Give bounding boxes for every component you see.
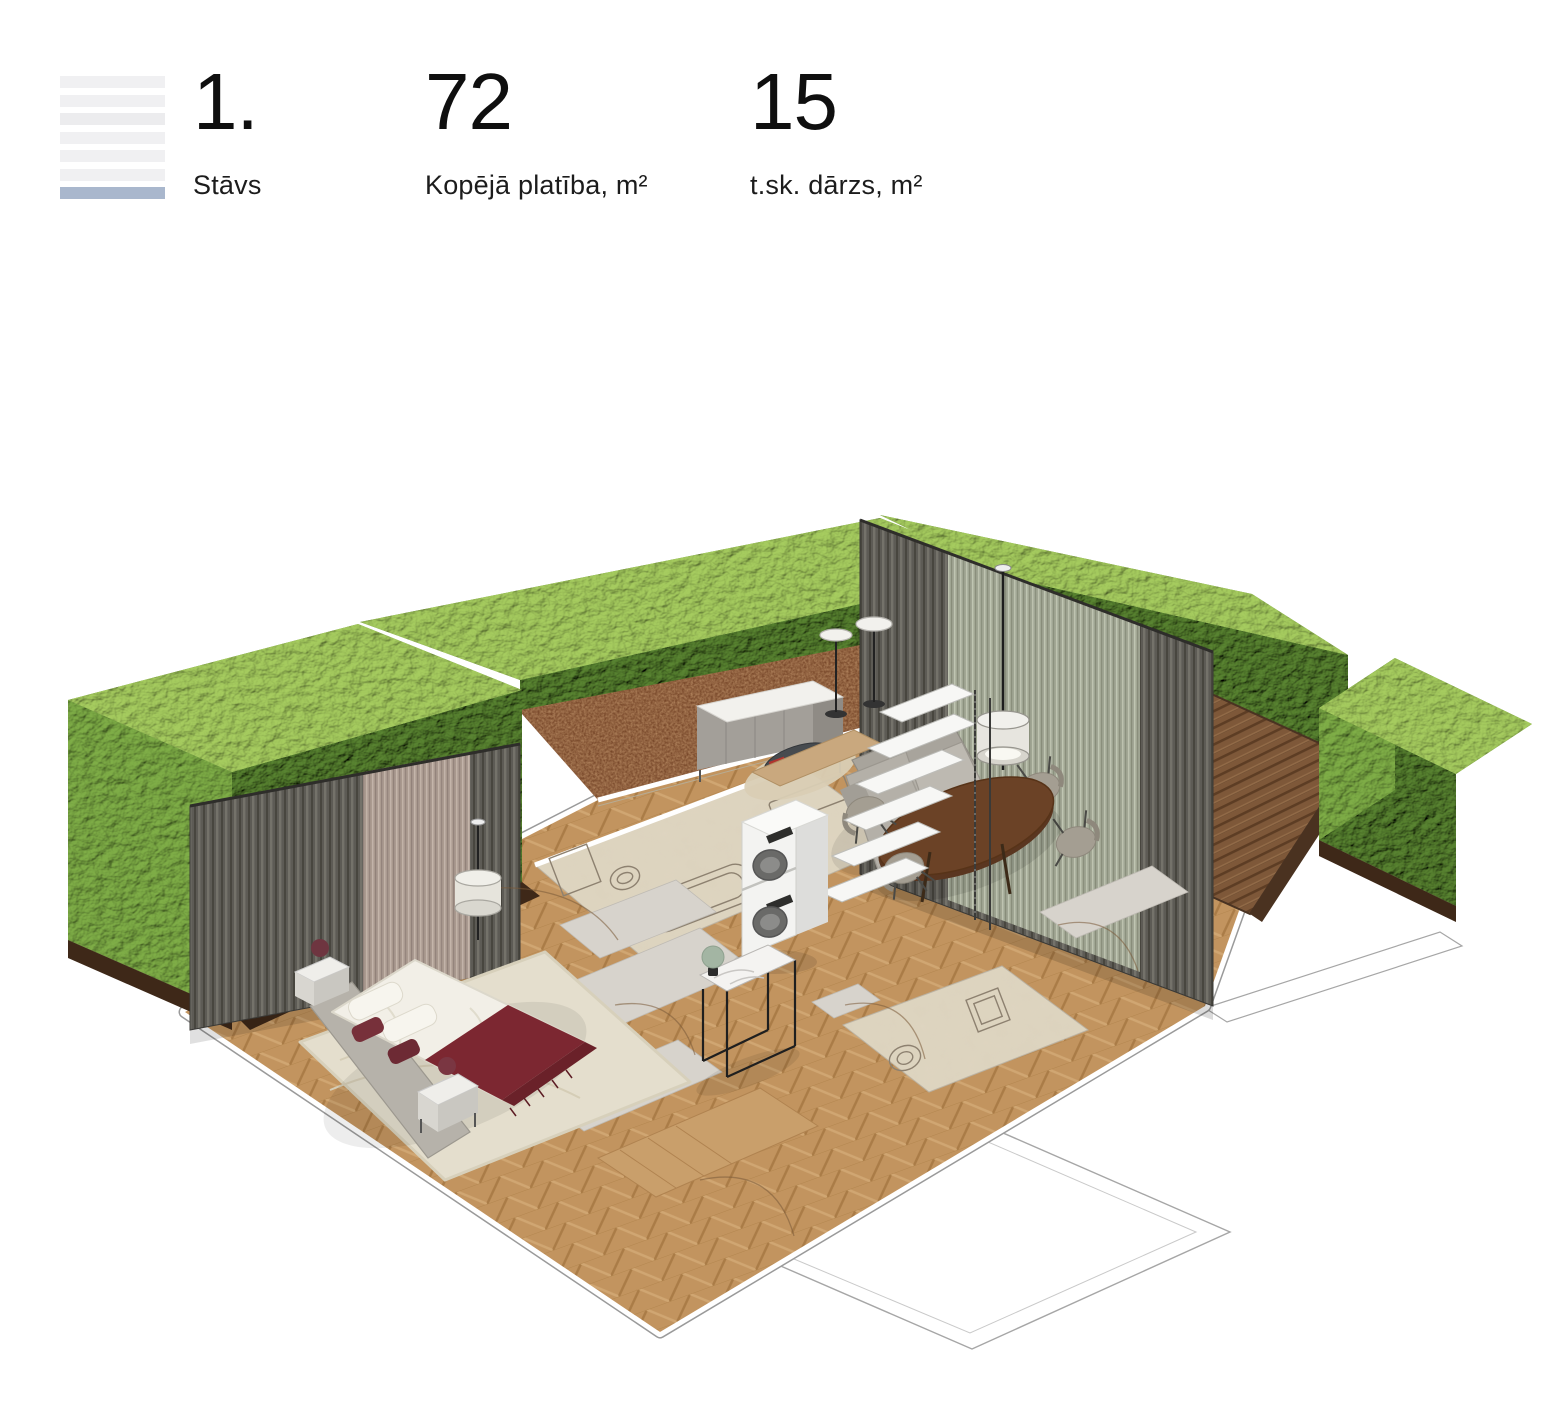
hedge-right xyxy=(1319,658,1532,922)
sphere-table-lamp xyxy=(438,1057,456,1075)
floorplan-3d-render xyxy=(0,0,1566,1412)
sphere-table-lamp xyxy=(311,939,329,957)
sage-sphere-lamp xyxy=(702,946,724,968)
apartment-listing-page: 1. Stāvs 72 Kopējā platība, m² 15 t.sk. … xyxy=(0,0,1566,1412)
